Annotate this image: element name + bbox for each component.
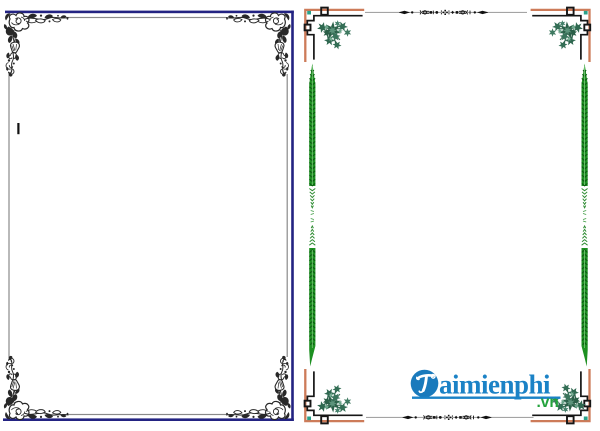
svg-text:aimienphi: aimienphi [439,370,551,400]
svg-text:.vn: .vn [537,394,559,411]
